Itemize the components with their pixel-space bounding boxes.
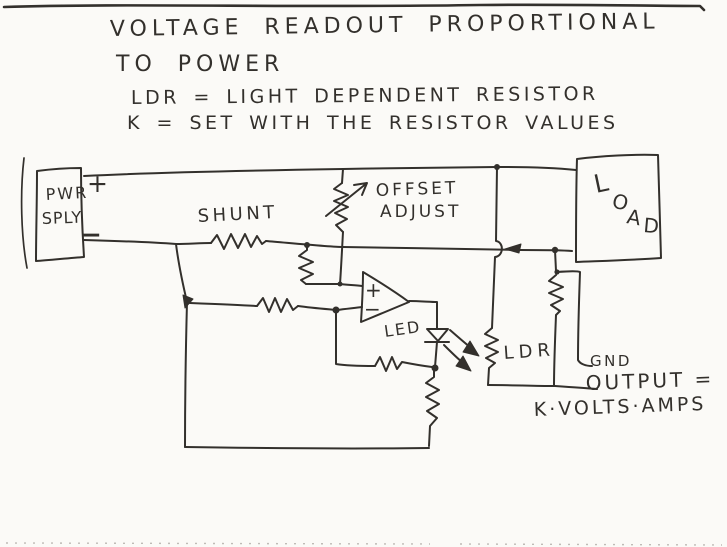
shunt-resistor: SHUNT xyxy=(197,202,278,249)
led-bottom-lead xyxy=(435,342,437,367)
series-resistor-zigzag xyxy=(549,275,563,386)
negative-rail-wire-left xyxy=(84,240,211,244)
input-resistor-zigzag xyxy=(257,298,298,312)
output-label: OUTPUT = xyxy=(585,367,714,395)
power-supply-label-line1: PWR xyxy=(45,183,89,204)
left-loop-wire xyxy=(176,244,187,447)
output-formula-label: K·VOLTS·AMPS xyxy=(533,393,706,421)
junction-arrow-mark xyxy=(183,295,193,308)
opamp-minus-input-label: − xyxy=(364,297,381,321)
ldr-label: LDR xyxy=(503,339,556,364)
led: LED xyxy=(383,317,479,371)
gnd-output-branch: GND OUTPUT = K·VOLTS·AMPS xyxy=(533,250,714,421)
circuit-diagram: VOLTAGE READOUT PROPORTIONAL TO POWER LD… xyxy=(0,0,727,547)
load-letter-d: D xyxy=(643,213,660,238)
load: L O A D xyxy=(576,155,661,262)
junction-arrow-mark xyxy=(505,244,521,253)
power-supply-label-line2: SPLY xyxy=(41,208,82,228)
load-return-drop-wire xyxy=(555,250,556,271)
shunt-resistor-zigzag xyxy=(211,234,266,249)
feedback-network xyxy=(176,244,439,448)
led-label: LED xyxy=(383,317,423,341)
output-node-wire xyxy=(488,385,597,389)
pot-bottom-lead xyxy=(340,232,343,284)
divider-resistor-zigzag xyxy=(299,245,313,284)
definition-k: K = SET WITH THE RESISTOR VALUES xyxy=(127,112,619,134)
ldr-resistor-zigzag xyxy=(485,328,498,385)
offset-adjust-label-line1: OFFSET xyxy=(375,178,458,201)
gnd-label: GND xyxy=(590,352,632,370)
bottom-loop-wire xyxy=(185,447,429,448)
led-node-resistor-zigzag xyxy=(426,369,439,446)
feedback-resistor-zigzag xyxy=(375,357,432,371)
paper-crease-line xyxy=(22,158,27,268)
shunt-label: SHUNT xyxy=(197,202,278,227)
offset-adjust-pot: OFFSET ADJUST xyxy=(326,169,461,284)
plus-terminal-label: + xyxy=(87,169,108,198)
positive-rail-drop-wire xyxy=(492,167,502,328)
negative-rail-wire-right xyxy=(266,241,572,251)
light-arrow-line xyxy=(444,345,462,362)
load-letter-l: L xyxy=(591,168,611,199)
offset-adjust-label-line2: ADJUST xyxy=(380,202,461,222)
title-line1: VOLTAGE READOUT PROPORTIONAL xyxy=(110,9,660,42)
notes: VOLTAGE READOUT PROPORTIONAL TO POWER LD… xyxy=(110,9,660,134)
led-triangle xyxy=(427,329,448,341)
supply-rails xyxy=(84,164,576,253)
gnd-wire xyxy=(557,271,592,366)
plus-input-wire xyxy=(306,284,362,286)
pot-adjust-arrow xyxy=(326,183,367,216)
minus-terminal-label: − xyxy=(81,220,102,249)
positive-rail-wire xyxy=(84,167,576,176)
paper-speckle-bottom xyxy=(6,543,722,545)
scanned-schematic-page: VOLTAGE READOUT PROPORTIONAL TO POWER LD… xyxy=(0,0,727,547)
divider-branch xyxy=(299,245,362,287)
load-letter-a: A xyxy=(625,204,643,230)
title-line2: TO POWER xyxy=(115,52,284,77)
pot-top-lead xyxy=(342,169,343,183)
junction-dot xyxy=(338,282,343,287)
definition-ldr: LDR = LIGHT DEPENDENT RESISTOR xyxy=(131,83,599,109)
